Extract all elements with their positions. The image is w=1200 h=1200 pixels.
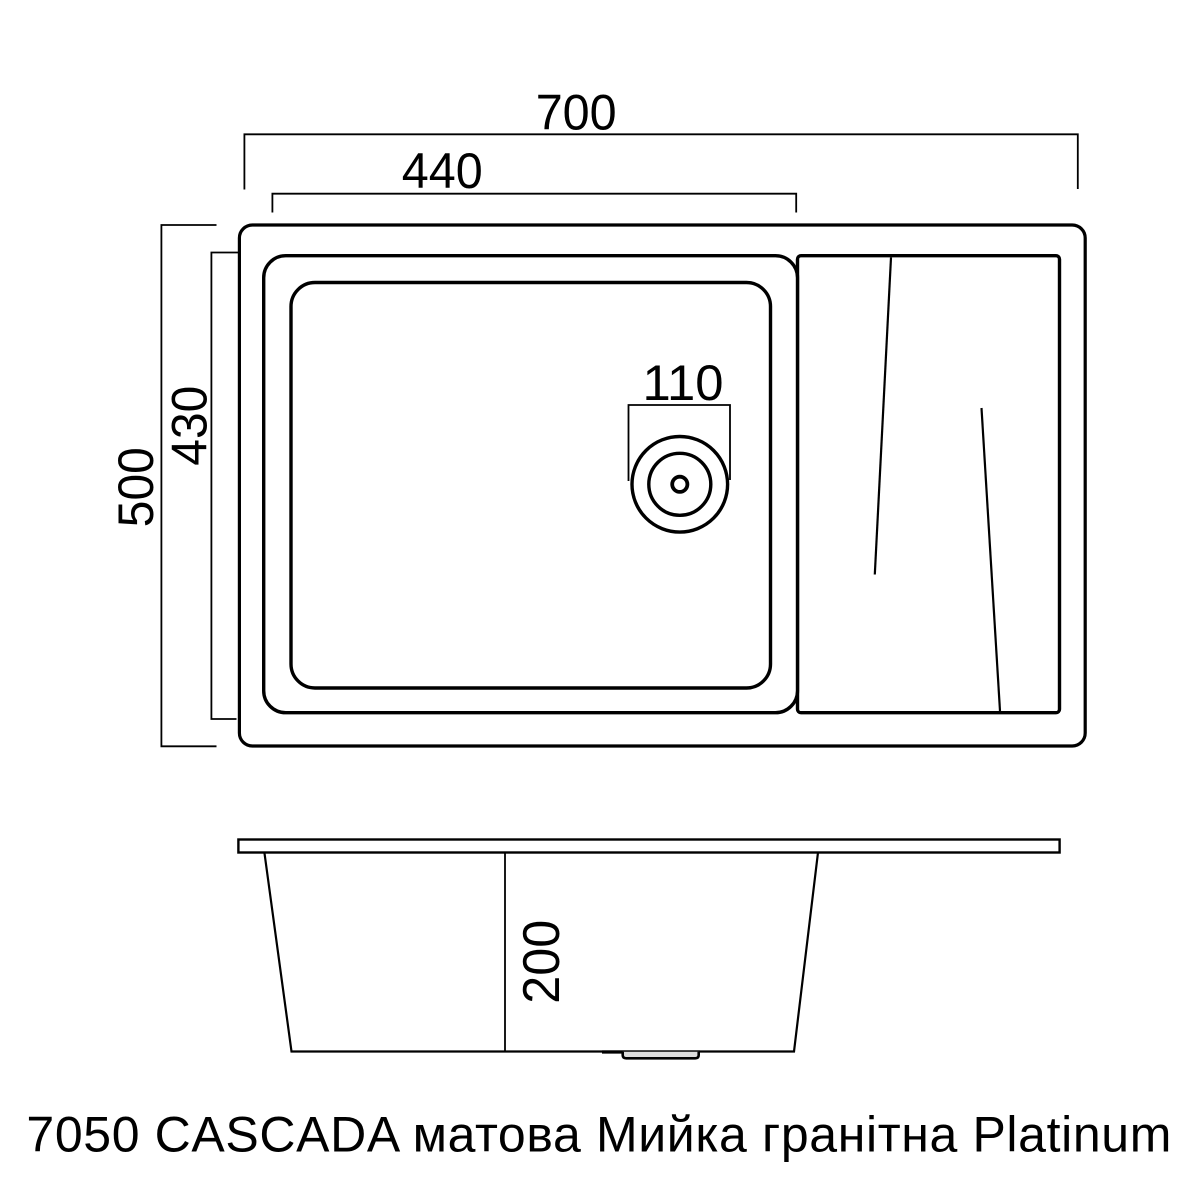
- svg-text:200: 200: [513, 920, 571, 1004]
- svg-text:440: 440: [402, 143, 483, 199]
- svg-text:7050 CASCADA матова Мийка гран: 7050 CASCADA матова Мийка гранітна Plati…: [26, 1106, 1171, 1162]
- svg-text:430: 430: [161, 386, 217, 466]
- svg-text:700: 700: [536, 85, 617, 141]
- svg-text:110: 110: [643, 355, 724, 411]
- svg-text:500: 500: [108, 447, 164, 527]
